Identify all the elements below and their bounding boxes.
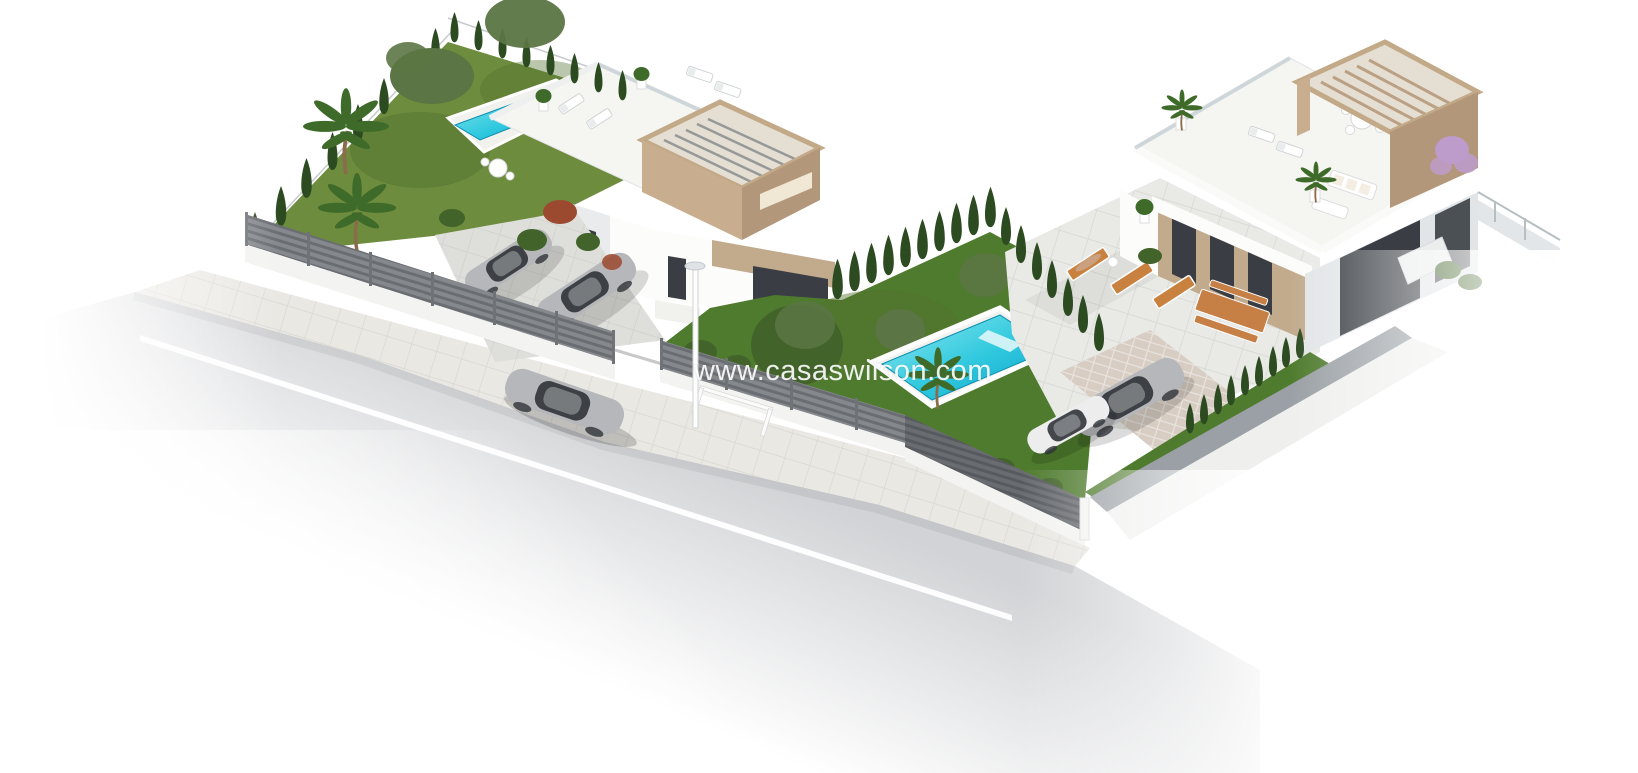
leafy-tree — [959, 253, 1011, 297]
terrace-table — [489, 159, 507, 177]
garden-bush — [576, 233, 600, 251]
garden-bush — [439, 209, 465, 227]
flowering-bush — [543, 200, 577, 224]
pergola-post — [1297, 76, 1310, 136]
garden-bush — [517, 229, 547, 251]
left-villa-window-small — [668, 256, 686, 300]
terrace-chair — [481, 158, 489, 166]
watermark: www.casaswilson.com — [694, 355, 992, 388]
side-table — [1108, 257, 1118, 267]
render-image: www.casaswilson.com — [0, 0, 1638, 773]
roof-chair — [1346, 126, 1355, 135]
garden-bush — [602, 254, 622, 270]
terrace-chair — [506, 172, 514, 180]
glass-door — [1172, 218, 1196, 285]
leafy-tree — [775, 301, 835, 349]
